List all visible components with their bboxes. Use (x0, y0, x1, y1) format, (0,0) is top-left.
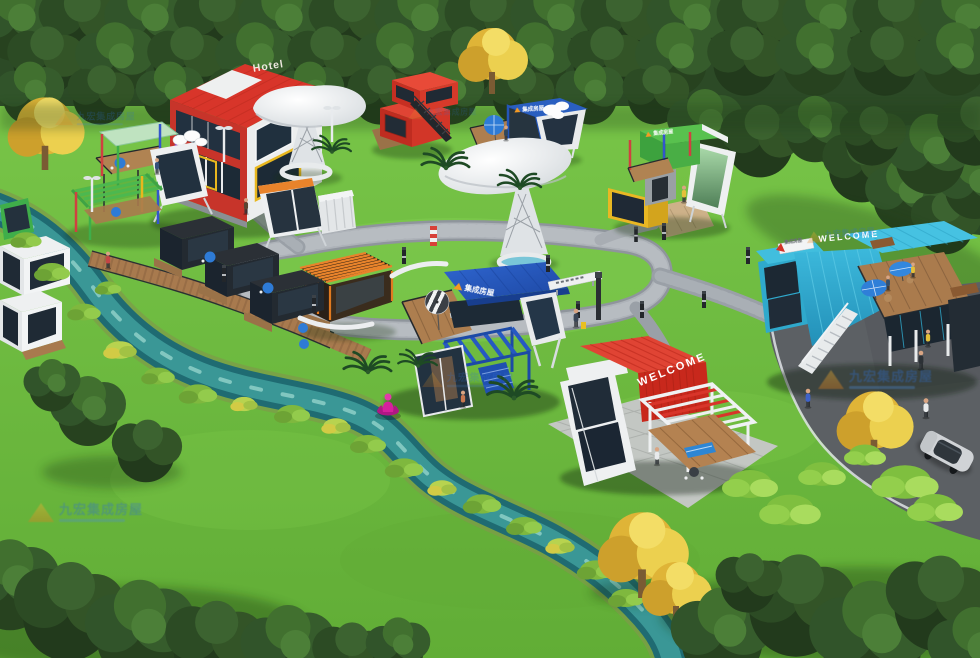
tall-lamp (595, 272, 602, 320)
scene-canvas (0, 0, 980, 658)
patio-table-blue (115, 158, 126, 169)
ribbed-white-container (318, 190, 356, 234)
yellow-suitcase (581, 322, 586, 329)
striped-bollard (430, 226, 437, 246)
scene-container-park: Hotel WELCOME WELCOME 集成房屋 集成房屋 集成房屋 集成房… (0, 0, 980, 658)
